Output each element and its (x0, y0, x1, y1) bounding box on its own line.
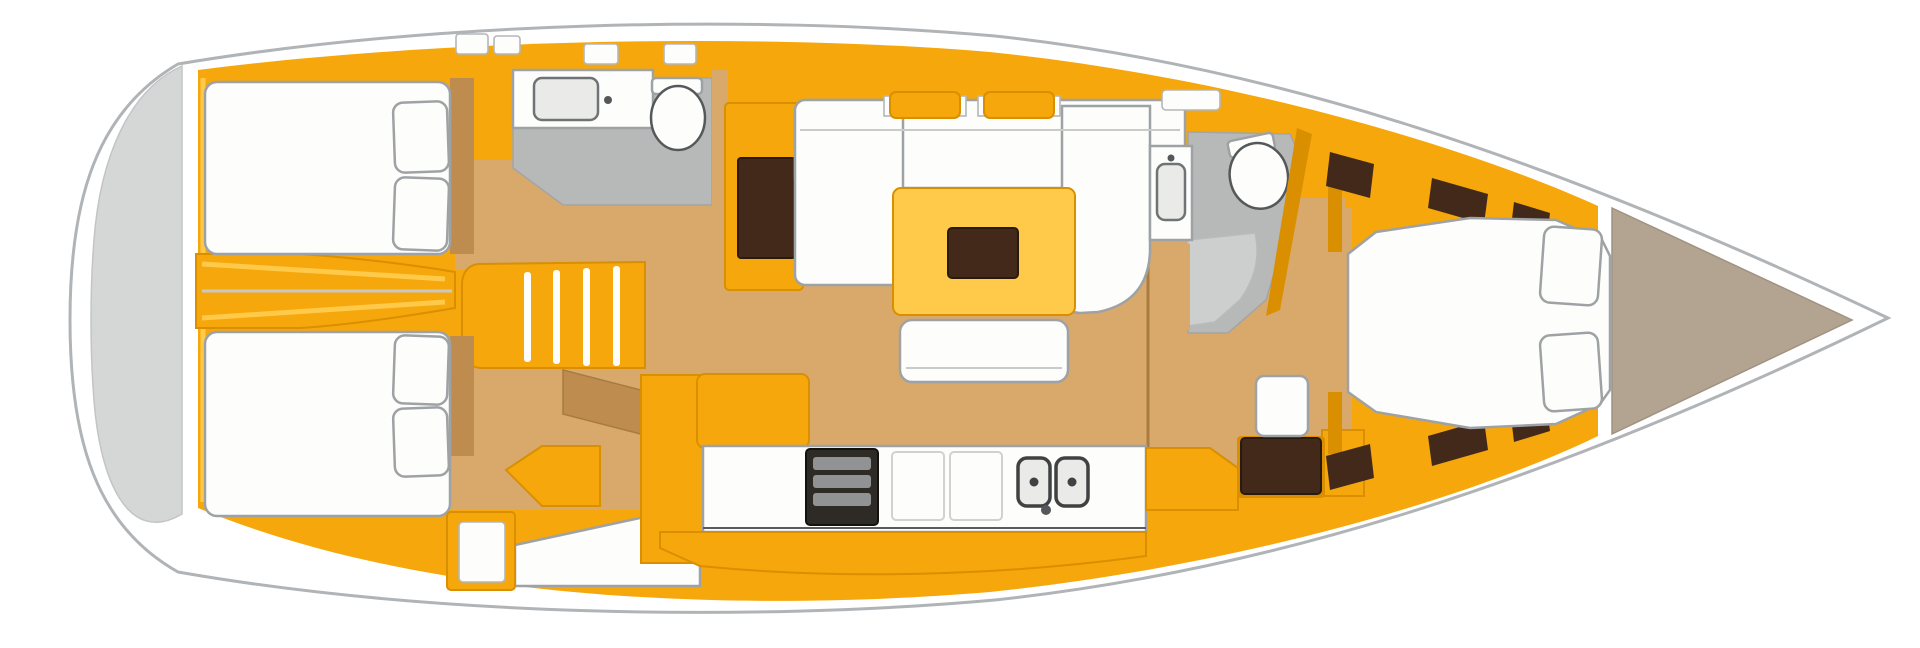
aft-port-nightstand (450, 78, 474, 254)
companionway (462, 262, 645, 368)
galley-stove (806, 449, 878, 525)
fwd-head-sink (1157, 164, 1185, 220)
deck-hatch (1162, 90, 1220, 110)
step-edge (613, 266, 620, 366)
aft-head-sink (534, 78, 598, 120)
fwd-head-door-sill (1156, 244, 1190, 330)
deck-hatch (584, 44, 618, 64)
step-edge (524, 272, 531, 362)
berth-pillow (393, 177, 449, 251)
settee-left-seat (795, 100, 903, 285)
salon-bench (900, 320, 1068, 382)
chart-table (1241, 438, 1321, 494)
boat-floorplan-figure (0, 0, 1920, 648)
deck-hatch (664, 44, 696, 64)
swim-platform (91, 66, 182, 522)
fwd-bulkhead-lower (1328, 392, 1342, 454)
settee-locker (890, 92, 960, 118)
nav-seat (1256, 376, 1308, 436)
settee-locker (984, 92, 1054, 118)
berth-pillow (393, 335, 449, 405)
fwd-head-faucet (1168, 155, 1175, 162)
step-edge (553, 270, 560, 364)
sink-drain (1030, 478, 1039, 487)
stove-grate-bar (813, 493, 871, 506)
aft-head-faucet (604, 96, 612, 104)
stove-grate-bar (813, 475, 871, 488)
aft-stbd-locker-door (459, 522, 505, 582)
aft-cabin-port (205, 78, 474, 254)
step-edge (583, 268, 590, 366)
companionway-hatch (494, 36, 520, 54)
fwd-bulkhead-upper (1328, 186, 1342, 252)
aft-stbd-nightstand (450, 336, 474, 456)
companionway-hatch (456, 34, 488, 54)
anchor-locker-deck (1612, 208, 1852, 434)
berth-pillow (393, 101, 449, 173)
berth-pillow (1539, 332, 1602, 412)
galley-peninsula (697, 374, 809, 448)
stove-grate (813, 457, 871, 506)
sink-drain (1068, 478, 1077, 487)
galley-faucet (1041, 505, 1051, 515)
aft-head-toilet (651, 86, 705, 150)
berth-pillow (1539, 226, 1602, 306)
wardrobe-door (738, 158, 795, 258)
berth-pillow (393, 407, 449, 477)
galley-aft-cabinet-step (1146, 448, 1238, 510)
stove-grate-bar (813, 457, 871, 470)
wardrobe (725, 103, 803, 290)
floorplan-svg (0, 0, 1920, 648)
salon-table-leaf (948, 228, 1018, 278)
